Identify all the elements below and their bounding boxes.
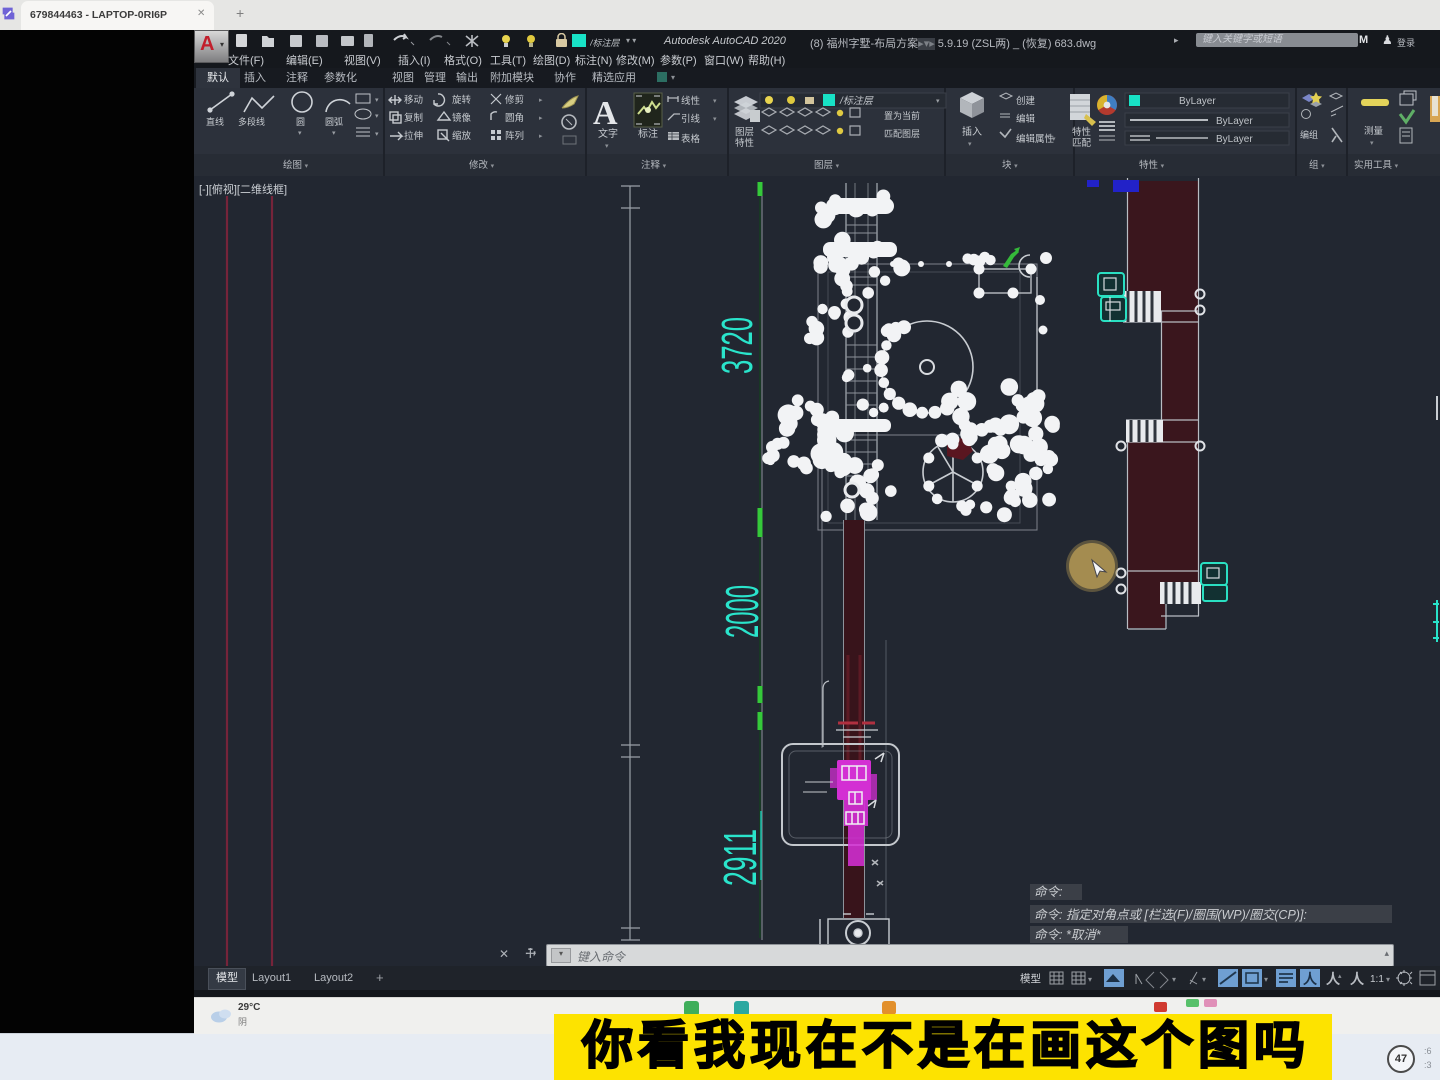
- svg-text:3720: 3720: [713, 317, 762, 374]
- svg-text:命令: 指定对角点或 [栏选(F)/圈围(WP)/圈交(CP: 命令: 指定对角点或 [栏选(F)/圈围(WP)/圈交(CP)]:: [1034, 908, 1307, 922]
- svg-text:▾: ▾: [968, 141, 972, 148]
- svg-text:▾: ▾: [1172, 975, 1176, 984]
- svg-text:▾: ▾: [332, 130, 336, 137]
- svg-text:圆角: 圆角: [505, 112, 524, 124]
- svg-text:文字: 文字: [598, 127, 618, 140]
- svg-text:▾: ▾: [1202, 975, 1206, 984]
- svg-text:▾: ▾: [1088, 975, 1092, 984]
- svg-text:2911: 2911: [714, 829, 766, 886]
- svg-text:圆: 圆: [296, 117, 305, 127]
- svg-text:▸: ▸: [539, 97, 543, 104]
- svg-text:/标注层: /标注层: [839, 95, 874, 107]
- svg-text:编组: 编组: [1300, 129, 1318, 140]
- svg-text:引线: 引线: [681, 113, 701, 125]
- svg-text:直线: 直线: [206, 116, 224, 127]
- svg-text:阵列: 阵列: [505, 130, 524, 142]
- svg-text:镜像: 镜像: [452, 112, 472, 124]
- svg-text:▾: ▾: [375, 97, 379, 104]
- svg-text:图层: 图层: [735, 127, 754, 138]
- svg-text:编辑: 编辑: [1016, 113, 1036, 125]
- svg-text:▾: ▾: [1386, 975, 1390, 984]
- svg-text:表格: 表格: [681, 133, 701, 145]
- svg-text:▾: ▾: [713, 116, 717, 123]
- svg-text:▸: ▸: [539, 133, 543, 140]
- svg-text:人: 人: [1303, 971, 1318, 987]
- svg-text:插入: 插入: [962, 125, 982, 138]
- svg-text:匹配: 匹配: [1072, 138, 1092, 149]
- svg-text:▾: ▾: [375, 131, 379, 138]
- svg-text:移动: 移动: [404, 94, 423, 106]
- svg-text:▾: ▾: [1052, 136, 1056, 143]
- svg-text:▾: ▾: [375, 113, 379, 120]
- svg-text:实用工具 ▾: 实用工具 ▾: [1354, 159, 1399, 171]
- svg-text:特性: 特性: [735, 137, 755, 149]
- svg-text:复制: 复制: [404, 112, 423, 124]
- svg-text:旋转: 旋转: [452, 94, 472, 106]
- svg-text:标注: 标注: [638, 127, 658, 140]
- svg-text:创建: 创建: [1016, 95, 1036, 107]
- svg-text:模型: 模型: [1020, 972, 1041, 985]
- svg-text:拉伸: 拉伸: [404, 130, 423, 142]
- svg-text:▾: ▾: [605, 143, 609, 150]
- svg-text:[-][俯视][二维线框]: [-][俯视][二维线框]: [199, 182, 287, 196]
- svg-text:▾: ▾: [936, 98, 940, 105]
- svg-text:多段线: 多段线: [238, 116, 265, 127]
- svg-text:1:1: 1:1: [1370, 974, 1384, 985]
- svg-text:测量: 测量: [1364, 126, 1384, 137]
- svg-text:▾: ▾: [1264, 975, 1268, 984]
- svg-text:▸: ▸: [539, 115, 543, 122]
- svg-text:特性: 特性: [1072, 126, 1092, 138]
- svg-text:2000: 2000: [716, 585, 768, 638]
- svg-text:▾: ▾: [713, 98, 717, 105]
- svg-text:人: 人: [1350, 971, 1365, 987]
- svg-text:命令:: 命令:: [1034, 885, 1062, 899]
- svg-text:缩放: 缩放: [452, 130, 472, 142]
- svg-text:置为当前: 置为当前: [884, 110, 920, 121]
- svg-text:命令: *取消*: 命令: *取消*: [1034, 928, 1102, 942]
- svg-text:ByLayer: ByLayer: [1216, 116, 1253, 127]
- svg-text:▾: ▾: [1370, 140, 1374, 147]
- svg-text:A: A: [593, 95, 618, 132]
- svg-text:线性: 线性: [681, 95, 701, 107]
- svg-text:▴: ▴: [1338, 973, 1342, 980]
- svg-text:修剪: 修剪: [505, 94, 524, 106]
- svg-text:▾: ▾: [298, 130, 302, 137]
- svg-text:ByLayer: ByLayer: [1216, 134, 1253, 145]
- svg-text:圆弧: 圆弧: [325, 116, 343, 127]
- svg-text:编辑属性: 编辑属性: [1016, 133, 1055, 145]
- svg-text:匹配图层: 匹配图层: [884, 129, 920, 139]
- svg-text:ByLayer: ByLayer: [1179, 96, 1216, 107]
